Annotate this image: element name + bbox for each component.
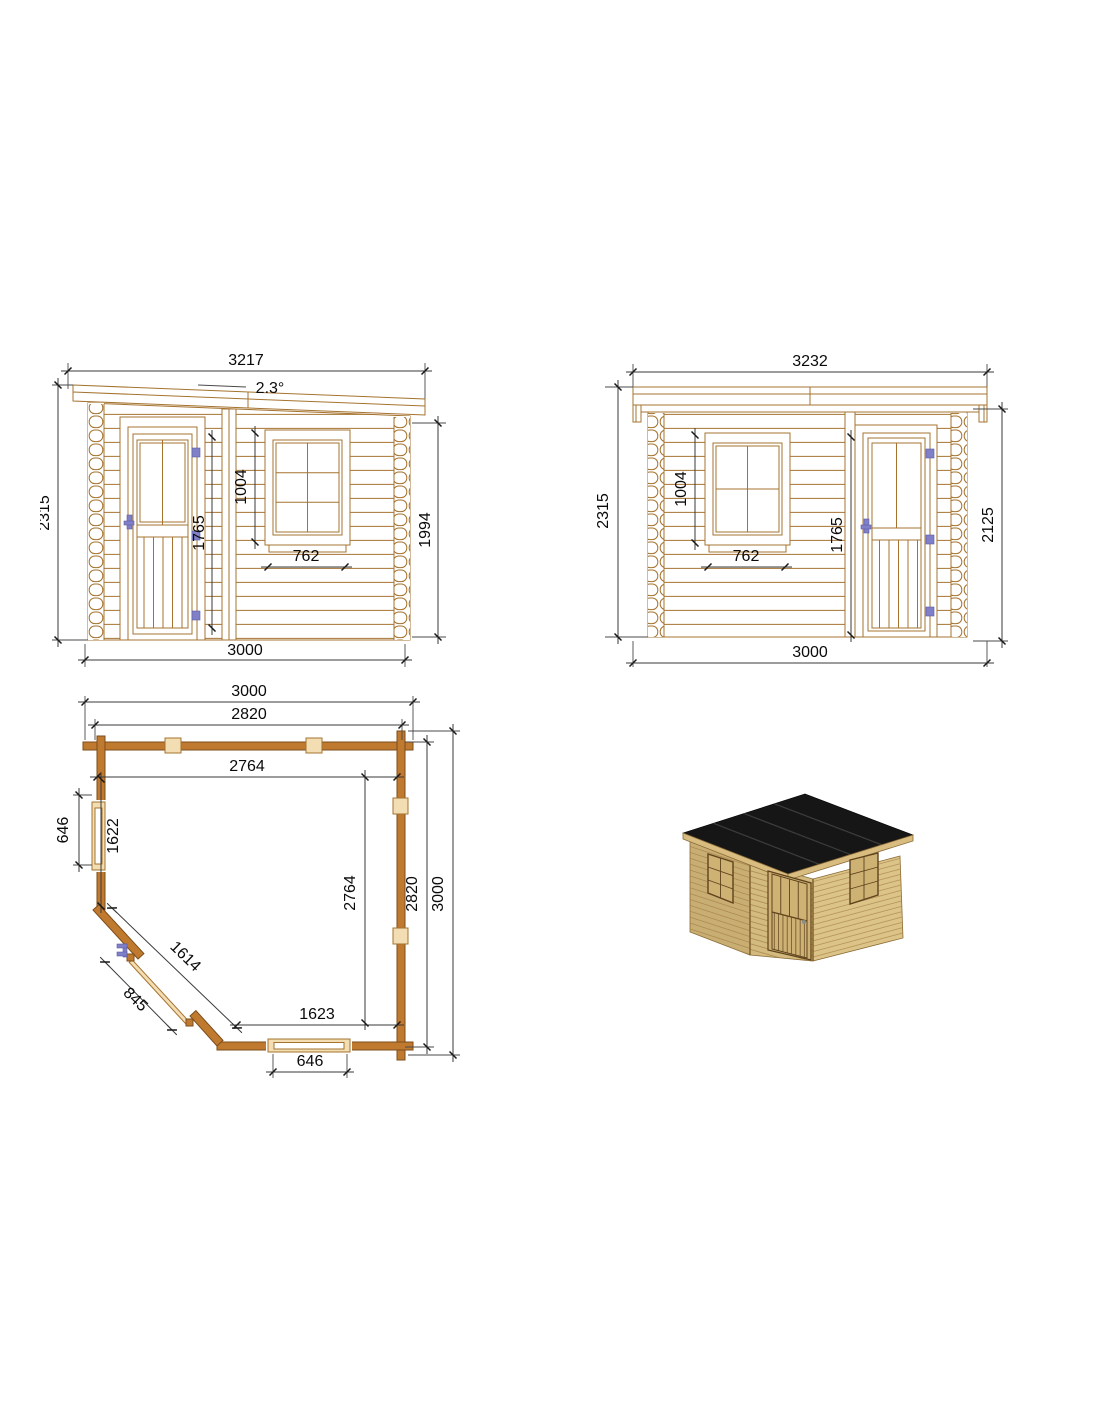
dim-plan-door-width: 845 — [120, 984, 151, 1015]
dim-front-roof-width: 3217 — [228, 352, 264, 369]
rear-window — [705, 433, 790, 552]
dim-rear-door-height: 1765 — [829, 517, 846, 553]
dim-front-window-width: 762 — [293, 548, 320, 565]
plan-walls — [83, 731, 413, 1060]
dim-front-side-wall-height: 1994 — [417, 512, 434, 548]
dim-plan-front-inner-width: 1623 — [299, 1006, 335, 1023]
dim-plan-front-window-width: 646 — [297, 1053, 324, 1070]
dim-rear-window-width: 762 — [733, 548, 760, 565]
floor-plan-figure: 3000 2820 2764 646 1622 1614 845 1623 64… — [40, 680, 470, 1090]
dim-plan-inner-width: 2764 — [229, 758, 265, 775]
dim-plan-outer-depth: 2820 — [404, 876, 421, 912]
front-window — [265, 430, 350, 552]
dim-plan-inner-depth: 2764 — [342, 875, 359, 911]
render-right-window — [850, 853, 878, 904]
door-handle-icon — [802, 920, 806, 924]
dim-front-roof-angle: 2.3° — [256, 380, 285, 397]
dim-rear-window-height: 1004 — [673, 471, 690, 507]
perspective-view-figure — [650, 775, 970, 1015]
rear-door — [855, 425, 937, 637]
dim-rear-side-wall-height: 2125 — [980, 507, 997, 543]
dim-front-door-height: 1765 — [191, 515, 208, 551]
dim-plan-outer-width: 2820 — [231, 706, 267, 723]
plan-front-window — [266, 1037, 352, 1054]
dim-rear-wall-width: 3000 — [792, 644, 828, 661]
dim-front-overall-height: 2315 — [40, 495, 53, 531]
rear-elevation-figure: 3232 — [595, 345, 1015, 675]
dim-front-wall-width: 3000 — [227, 642, 263, 659]
render-door — [768, 871, 811, 960]
dim-rear-roof-width: 3232 — [792, 353, 828, 370]
door-handle-icon — [117, 944, 127, 957]
dim-plan-side-wall-length: 1622 — [105, 818, 122, 854]
dim-plan-side-window-width: 646 — [55, 817, 72, 844]
dim-plan-corner-wall-length: 1614 — [166, 938, 203, 975]
dim-plan-overall-depth: 3000 — [430, 876, 447, 912]
dim-front-window-height: 1004 — [233, 469, 250, 505]
dim-plan-overall-width: 3000 — [231, 683, 267, 700]
dim-rear-overall-height: 2315 — [595, 493, 612, 529]
front-elevation-figure: 3217 2.3° — [40, 345, 460, 675]
drawing-sheet: 3217 2.3° — [0, 0, 1100, 1422]
